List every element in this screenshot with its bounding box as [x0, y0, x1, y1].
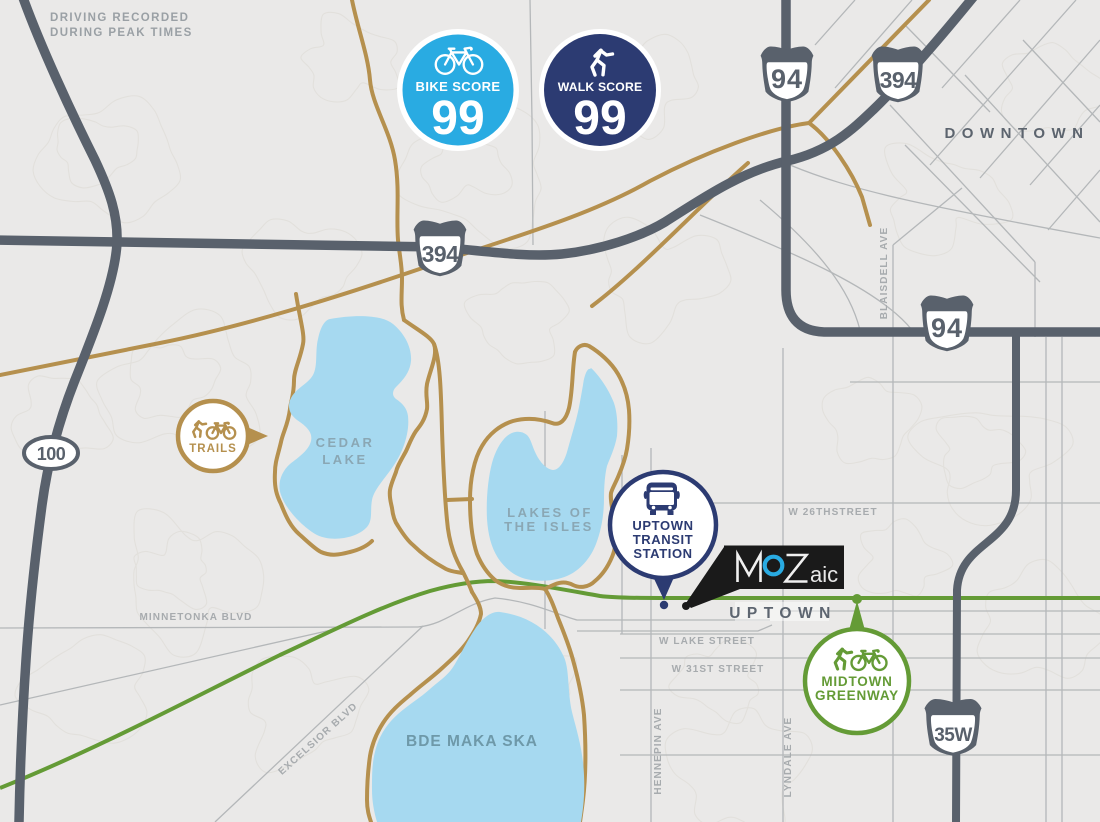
svg-text:LAKES OF: LAKES OF: [507, 505, 593, 520]
svg-text:BLAISDELL AVE: BLAISDELL AVE: [879, 227, 890, 319]
svg-text:MINNETONKA BLVD: MINNETONKA BLVD: [140, 612, 253, 623]
svg-text:THE ISLES: THE ISLES: [504, 519, 594, 534]
svg-text:94: 94: [931, 313, 963, 343]
svg-text:94: 94: [771, 64, 803, 94]
svg-text:35W: 35W: [934, 725, 972, 746]
svg-text:HENNEPIN AVE: HENNEPIN AVE: [653, 707, 664, 794]
svg-text:W LAKE STREET: W LAKE STREET: [659, 636, 755, 647]
svg-text:DRIVING RECORDED: DRIVING RECORDED: [50, 12, 189, 24]
svg-text:UPTOWN: UPTOWN: [729, 605, 837, 622]
svg-text:100: 100: [37, 444, 66, 464]
svg-text:LYNDALE AVE: LYNDALE AVE: [783, 717, 794, 798]
svg-text:394: 394: [880, 67, 918, 93]
svg-text:LAKE: LAKE: [322, 452, 367, 467]
svg-text:BDE MAKA SKA: BDE MAKA SKA: [406, 733, 538, 750]
svg-text:99: 99: [573, 92, 626, 145]
svg-text:MIDTOWN: MIDTOWN: [821, 674, 892, 689]
svg-text:GREENWAY: GREENWAY: [815, 688, 899, 703]
svg-text:W 26THSTREET: W 26THSTREET: [788, 507, 877, 518]
svg-text:TRANSIT: TRANSIT: [633, 532, 694, 547]
svg-text:CEDAR: CEDAR: [316, 435, 375, 450]
svg-text:UPTOWN: UPTOWN: [632, 518, 693, 533]
svg-text:STATION: STATION: [633, 546, 692, 561]
svg-text:W 31ST STREET: W 31ST STREET: [672, 664, 765, 675]
svg-text:DURING PEAK TIMES: DURING PEAK TIMES: [50, 27, 193, 39]
svg-text:99: 99: [431, 92, 484, 145]
svg-text:aic: aic: [810, 562, 838, 587]
svg-text:TRAILS: TRAILS: [189, 443, 237, 455]
svg-text:DOWNTOWN: DOWNTOWN: [944, 125, 1089, 142]
svg-text:394: 394: [422, 241, 460, 267]
